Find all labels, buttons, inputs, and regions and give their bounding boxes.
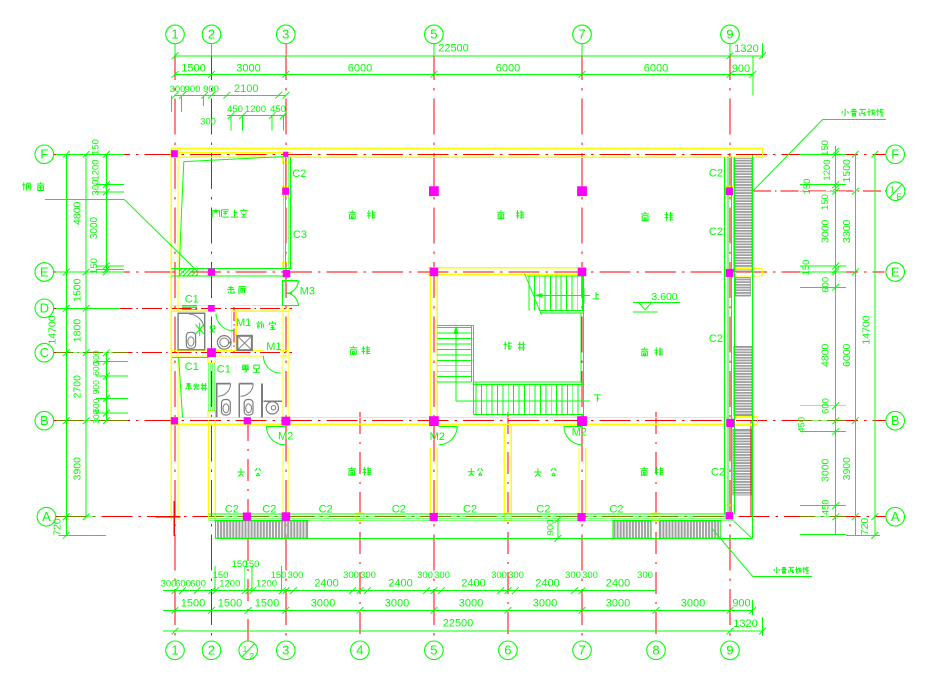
svg-text:300: 300 [200,117,216,128]
svg-text:5: 5 [430,643,437,658]
svg-text:1500: 1500 [181,63,205,75]
svg-text:300: 300 [288,570,304,581]
svg-text:150: 150 [89,258,100,274]
svg-text:4800: 4800 [72,201,84,225]
svg-text:2400: 2400 [606,578,630,590]
svg-text:M1: M1 [266,341,281,353]
svg-text:300: 300 [170,84,186,95]
svg-text:300: 300 [434,570,450,581]
svg-text:900: 900 [732,63,750,75]
svg-text:A: A [42,509,51,524]
svg-text:900: 900 [732,598,750,610]
svg-text:900: 900 [546,520,557,536]
svg-text:4800: 4800 [820,343,832,367]
svg-text:1500: 1500 [218,598,242,610]
svg-text:1: 1 [171,643,178,658]
svg-text:C2: C2 [536,504,550,516]
svg-text:2100: 2100 [234,83,258,95]
svg-text:150: 150 [820,140,831,156]
svg-text:1320: 1320 [734,43,758,55]
svg-text:C2: C2 [609,504,623,516]
svg-text:2: 2 [208,643,215,658]
svg-text:9: 9 [726,27,733,42]
svg-text:C2: C2 [463,504,477,516]
svg-text:C2: C2 [292,168,306,180]
svg-text:300: 300 [91,180,102,196]
svg-text:3.600: 3.600 [651,291,677,303]
svg-text:6000: 6000 [841,343,853,367]
svg-text:1: 1 [243,644,248,654]
svg-text:300: 300 [343,570,359,581]
svg-text:450: 450 [797,417,808,433]
svg-text:3900: 3900 [72,457,84,481]
svg-text:C2: C2 [709,168,723,180]
svg-text:1200: 1200 [822,159,833,180]
svg-text:900: 900 [203,84,219,95]
svg-text:C2: C2 [392,504,406,516]
svg-text:3000: 3000 [681,598,705,610]
svg-text:2700: 2700 [72,375,84,399]
svg-text:C1: C1 [185,294,199,306]
svg-text:6000: 6000 [348,63,372,75]
svg-text:300: 300 [582,570,598,581]
svg-text:1500: 1500 [841,159,853,183]
svg-text:300: 300 [491,570,507,581]
svg-text:300: 300 [91,409,101,423]
svg-text:150: 150 [91,139,102,155]
svg-text:300: 300 [360,570,376,581]
svg-text:C2: C2 [711,466,725,478]
svg-text:22500: 22500 [438,43,469,55]
svg-text:2400: 2400 [314,578,338,590]
svg-text:C3: C3 [293,229,307,241]
svg-text:1200: 1200 [219,579,240,590]
svg-text:150: 150 [271,570,287,581]
svg-text:F: F [40,147,48,162]
svg-text:3000: 3000 [820,219,832,243]
svg-text:14700: 14700 [861,315,873,344]
svg-text:M3: M3 [300,286,315,298]
svg-text:D: D [40,301,49,316]
svg-text:4: 4 [356,643,363,658]
svg-text:1500: 1500 [72,278,84,302]
svg-text:E: E [40,264,49,279]
svg-text:6: 6 [504,643,511,658]
svg-text:M2: M2 [278,431,293,443]
svg-text:3900: 3900 [841,457,853,481]
svg-text:600: 600 [190,579,206,590]
svg-text:150: 150 [802,179,813,195]
svg-text:3000: 3000 [459,598,483,610]
svg-text:M2: M2 [430,431,445,443]
svg-text:450: 450 [270,104,286,115]
svg-text:C1: C1 [185,361,199,373]
svg-text:600: 600 [821,277,832,293]
svg-text:3000: 3000 [385,598,409,610]
svg-text:2400: 2400 [461,578,485,590]
svg-text:B: B [891,413,900,428]
svg-text:E: E [891,264,900,279]
svg-text:1200: 1200 [91,159,102,180]
svg-text:2400: 2400 [388,578,412,590]
svg-text:2400: 2400 [535,578,559,590]
svg-text:14700: 14700 [47,315,59,344]
svg-text:1: 1 [171,27,178,42]
svg-text:600: 600 [175,579,191,590]
svg-text:2: 2 [249,651,254,661]
svg-text:C2: C2 [319,504,333,516]
svg-text:720: 720 [52,518,64,536]
svg-text:300: 300 [565,570,581,581]
svg-text:C2: C2 [709,333,723,345]
svg-text:150: 150 [820,194,831,210]
svg-text:8: 8 [652,643,659,658]
svg-text:5: 5 [430,27,437,42]
svg-text:2: 2 [208,27,215,42]
svg-text:3000: 3000 [820,458,832,482]
svg-text:3300: 3300 [841,219,853,243]
svg-text:1: 1 [890,185,895,195]
svg-text:1800: 1800 [72,319,84,343]
svg-text:6000: 6000 [496,63,520,75]
svg-text:600: 600 [91,361,101,375]
svg-text:150: 150 [244,559,260,570]
svg-text:900: 900 [91,380,101,394]
svg-text:C2: C2 [262,504,276,516]
svg-text:300: 300 [417,570,433,581]
svg-text:3000: 3000 [311,598,335,610]
svg-text:9: 9 [726,643,733,658]
svg-text:3000: 3000 [606,598,630,610]
svg-text:1320: 1320 [733,618,757,630]
svg-text:450: 450 [227,104,243,115]
svg-text:22500: 22500 [443,618,474,630]
svg-text:300: 300 [637,570,653,581]
svg-text:M2: M2 [572,427,587,439]
svg-text:6000: 6000 [644,63,668,75]
svg-text:C1: C1 [217,364,231,376]
svg-text:3000: 3000 [236,63,260,75]
svg-text:E: E [896,192,902,202]
svg-text:7: 7 [578,643,585,658]
svg-text:3000: 3000 [89,216,100,239]
svg-text:300: 300 [508,570,524,581]
svg-text:600: 600 [821,398,832,414]
svg-text:450: 450 [821,499,832,515]
svg-text:7: 7 [578,27,585,42]
svg-text:B: B [40,413,49,428]
svg-text:300: 300 [161,579,177,590]
svg-text:1500: 1500 [181,598,205,610]
svg-text:900: 900 [185,84,201,95]
svg-text:C2: C2 [709,226,723,238]
svg-text:C: C [40,345,49,360]
svg-text:3000: 3000 [533,598,557,610]
svg-text:M1: M1 [236,317,251,329]
svg-text:C2: C2 [225,504,239,516]
svg-text:3: 3 [282,643,289,658]
svg-text:A: A [891,509,900,524]
svg-text:1500: 1500 [255,598,279,610]
svg-text:1200: 1200 [245,104,266,115]
svg-text:150: 150 [801,260,812,276]
svg-text:F: F [891,147,899,162]
svg-text:720: 720 [859,518,871,536]
svg-text:3: 3 [282,27,289,42]
